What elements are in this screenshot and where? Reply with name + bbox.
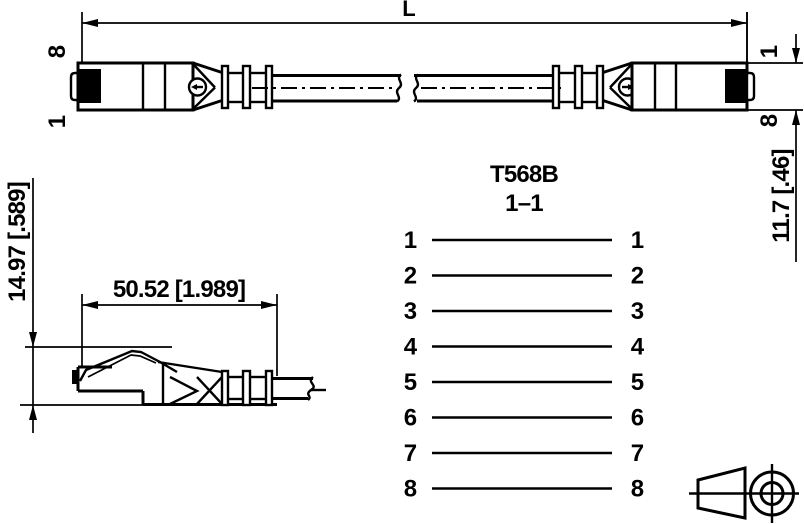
pin8-label-left: 8 <box>44 45 71 58</box>
pin-right-label: 2 <box>631 263 644 290</box>
arrowhead-right <box>261 301 277 309</box>
pin-left-label: 4 <box>404 334 418 361</box>
arrowhead-down <box>792 48 800 63</box>
pin-left-label: 5 <box>404 369 417 396</box>
connector-side-view: 50.52 [1.989] 14.97 [.589] <box>4 178 326 433</box>
plug-height-dim-side-label: 14.97 [.589] <box>4 182 31 302</box>
plug-height-dimension: 1 8 11.7 [.46] <box>747 34 803 262</box>
rib <box>222 66 228 108</box>
pin-left-label: 8 <box>404 476 417 503</box>
arrowhead-right <box>731 19 747 27</box>
contact-block <box>79 69 101 103</box>
third-angle-projection-icon <box>689 464 799 523</box>
arrowhead-up <box>29 405 37 420</box>
wiring-subtitle: 1–1 <box>505 190 543 217</box>
plug-nose <box>747 73 754 100</box>
pin-row: 7 7 <box>404 440 644 467</box>
pin-row: 1 1 <box>404 227 644 254</box>
pin-right-label: 8 <box>631 476 644 503</box>
cable <box>252 75 566 102</box>
pin-row: 5 5 <box>404 369 644 396</box>
rib <box>266 371 272 405</box>
boot-ribs-side <box>222 371 272 405</box>
boot-ribs <box>222 66 272 108</box>
patch-cord-technical-drawing: L 8 1 <box>0 0 804 524</box>
pin1-label-left: 1 <box>44 115 71 128</box>
rib <box>222 371 228 405</box>
rib <box>243 371 250 405</box>
pin-right-label: 1 <box>631 227 644 254</box>
rib <box>553 66 559 108</box>
pin-row: 6 6 <box>404 405 644 432</box>
cable-assembly-top-view: L 8 1 <box>44 0 803 262</box>
pin-right-label: 4 <box>631 334 645 361</box>
pin-left-label: 7 <box>404 440 417 467</box>
arrowhead-up <box>792 110 800 125</box>
strain-relief-cone <box>170 377 197 404</box>
arrowhead-left <box>82 301 98 309</box>
pin-left-label: 2 <box>404 263 417 290</box>
pin-row: 2 2 <box>404 263 644 290</box>
contact-block <box>725 69 747 103</box>
pin-left-label: 6 <box>404 405 417 432</box>
break-line <box>308 377 314 400</box>
plug-height-dim-label: 11.7 [.46] <box>768 149 795 242</box>
left-connector: 8 1 <box>44 45 272 128</box>
drawing-svg: L 8 1 <box>0 0 804 524</box>
right-connector <box>553 12 754 110</box>
arrowhead-left <box>82 19 98 27</box>
length-dim-label: L <box>402 0 415 21</box>
pin-row: 3 3 <box>404 298 644 325</box>
rib <box>266 66 272 108</box>
plug-length-dim-label: 50.52 [1.989] <box>113 276 245 303</box>
boot-ribs <box>553 66 603 108</box>
arrowhead-down <box>29 332 37 347</box>
rib <box>575 66 582 108</box>
rib <box>597 66 603 108</box>
pin-left-label: 1 <box>404 227 417 254</box>
pin-right-label: 6 <box>631 405 644 432</box>
pin-right-label: 7 <box>631 440 644 467</box>
plug-length-dimension: 50.52 [1.989] <box>82 276 277 376</box>
pin-right-label: 5 <box>631 369 644 396</box>
rib <box>243 66 250 108</box>
pin-right-label: 3 <box>631 298 644 325</box>
pin-row: 4 4 <box>404 334 645 361</box>
pin-row: 8 8 <box>404 476 644 503</box>
wiring-title: T568B <box>490 161 559 188</box>
pin8-label-right: 8 <box>756 114 783 127</box>
plug-side-profile <box>72 351 326 405</box>
pin-left-label: 3 <box>404 298 417 325</box>
break-line <box>414 75 418 102</box>
pin1-label-right: 1 <box>756 45 783 58</box>
wiring-diagram: T568B 1–1 1 1 2 2 3 3 4 4 5 5 6 <box>404 161 645 503</box>
break-line <box>397 75 401 102</box>
